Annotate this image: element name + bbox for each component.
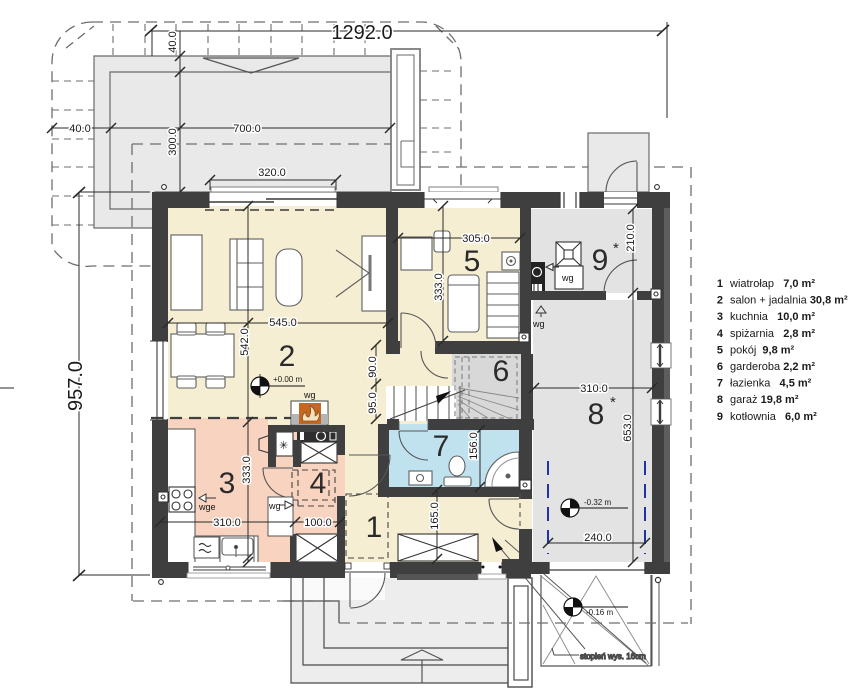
svg-text:542.0: 542.0 <box>239 328 251 356</box>
svg-text:łazienka 4,5 m²: łazienka 4,5 m² <box>730 378 812 390</box>
svg-text:kuchnia 10,0 m²: kuchnia 10,0 m² <box>730 311 815 323</box>
svg-text:kotłownia 6,0 m²: kotłownia 6,0 m² <box>730 411 817 423</box>
svg-text:210.0: 210.0 <box>625 224 637 252</box>
svg-text:wg: wg <box>561 273 574 283</box>
svg-text:310.0: 310.0 <box>213 517 241 529</box>
svg-text:wg: wg <box>532 319 545 329</box>
svg-text:2: 2 <box>717 295 723 307</box>
svg-text:320.0: 320.0 <box>258 167 286 179</box>
svg-text:165.0: 165.0 <box>429 502 441 530</box>
svg-text:-0.32 m: -0.32 m <box>584 498 611 507</box>
svg-text:9: 9 <box>592 244 609 277</box>
svg-text:garderoba 2,2 m²: garderoba 2,2 m² <box>730 361 815 373</box>
svg-text:5: 5 <box>717 344 723 356</box>
svg-text:9: 9 <box>717 411 723 423</box>
svg-text:240.0: 240.0 <box>584 532 612 544</box>
svg-text:garaż 19,8 m²: garaż 19,8 m² <box>730 394 799 406</box>
svg-text:333.0: 333.0 <box>433 273 445 301</box>
svg-text:*: * <box>613 240 619 257</box>
svg-text:40.0: 40.0 <box>69 123 90 135</box>
svg-text:1: 1 <box>366 511 383 544</box>
svg-text:95.0: 95.0 <box>367 392 379 413</box>
svg-text:653.0: 653.0 <box>622 414 634 442</box>
svg-text:545.0: 545.0 <box>269 317 297 329</box>
svg-text:wg: wg <box>303 390 316 400</box>
svg-text:*: * <box>610 394 616 411</box>
svg-text:700.0: 700.0 <box>233 123 261 135</box>
svg-text:90.0: 90.0 <box>367 356 379 377</box>
svg-text:7: 7 <box>433 430 450 463</box>
svg-text:156.0: 156.0 <box>468 432 480 460</box>
svg-text:2: 2 <box>279 340 296 373</box>
svg-text:✳: ✳ <box>279 440 288 452</box>
svg-text:-0.16 m: -0.16 m <box>586 608 613 617</box>
svg-text:305.0: 305.0 <box>462 233 490 245</box>
svg-text:40.0: 40.0 <box>167 31 179 52</box>
svg-text:1292.0: 1292.0 <box>331 22 392 44</box>
svg-text:300.0: 300.0 <box>167 128 179 156</box>
svg-text:6: 6 <box>717 361 723 373</box>
svg-text:+0.00 m: +0.00 m <box>273 375 302 384</box>
svg-text:333.0: 333.0 <box>241 456 253 484</box>
svg-text:salon + jadalnia 30,8 m²: salon + jadalnia 30,8 m² <box>730 295 848 307</box>
svg-text:6: 6 <box>493 355 510 388</box>
svg-text:3: 3 <box>219 467 236 500</box>
svg-text:310.0: 310.0 <box>580 383 608 395</box>
svg-text:7: 7 <box>717 378 723 390</box>
svg-text:spiżarnia 2,8 m²: spiżarnia 2,8 m² <box>730 328 815 340</box>
svg-text:1: 1 <box>717 278 723 290</box>
svg-text:stopień wys. 16cm: stopień wys. 16cm <box>580 652 646 661</box>
svg-text:5: 5 <box>464 245 481 278</box>
svg-text:957.0: 957.0 <box>65 361 87 411</box>
svg-text:wge: wge <box>198 502 216 512</box>
svg-text:wiatrołap 7,0 m²: wiatrołap 7,0 m² <box>729 278 815 290</box>
svg-text:3: 3 <box>717 311 723 323</box>
svg-text:100.0: 100.0 <box>304 517 332 529</box>
svg-text:wg: wg <box>268 501 281 511</box>
svg-text:4: 4 <box>717 328 724 340</box>
svg-text:8: 8 <box>588 398 605 431</box>
svg-text:pokój 9,8 m²: pokój 9,8 m² <box>730 344 795 356</box>
svg-text:8: 8 <box>717 394 723 406</box>
svg-text:4: 4 <box>310 467 327 500</box>
